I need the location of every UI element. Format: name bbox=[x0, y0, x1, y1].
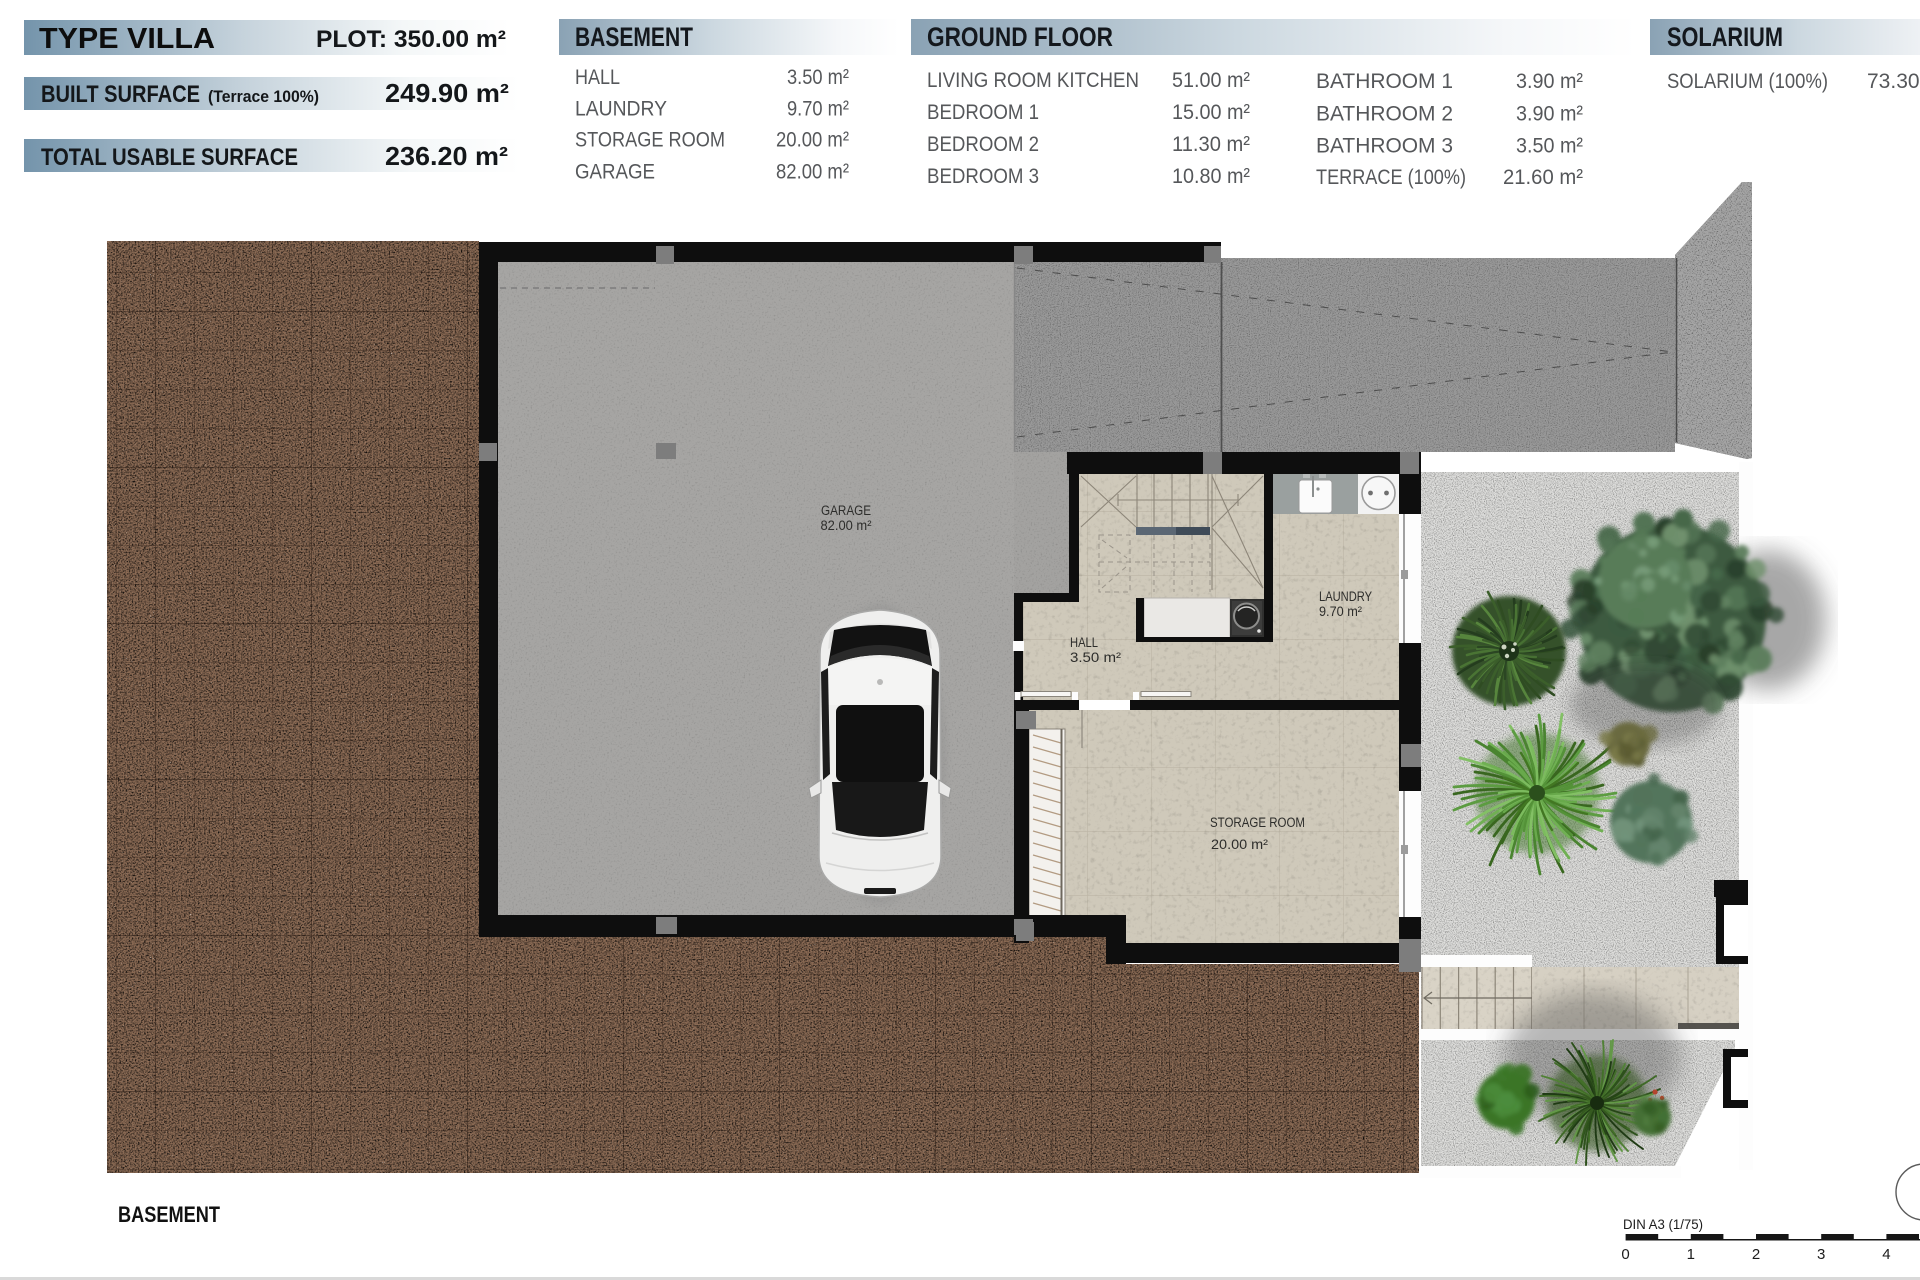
svg-text:1: 1 bbox=[1687, 1246, 1695, 1263]
svg-text:82.00 m²: 82.00 m² bbox=[821, 518, 872, 533]
svg-text:SOLARIUM (100%): SOLARIUM (100%) bbox=[1667, 70, 1828, 93]
svg-text:(Terrace 100%): (Terrace 100%) bbox=[208, 87, 319, 106]
svg-text:TOTAL USABLE SURFACE: TOTAL USABLE SURFACE bbox=[41, 144, 298, 171]
svg-text:21.60 m²: 21.60 m² bbox=[1503, 166, 1583, 189]
svg-text:BATHROOM 2: BATHROOM 2 bbox=[1316, 103, 1453, 126]
svg-text:DIN A3 (1/75): DIN A3 (1/75) bbox=[1623, 1217, 1703, 1232]
svg-text:TERRACE (100%): TERRACE (100%) bbox=[1316, 166, 1466, 189]
svg-text:BATHROOM 3: BATHROOM 3 bbox=[1316, 135, 1453, 158]
svg-text:249.90 m²: 249.90 m² bbox=[385, 78, 509, 108]
svg-text:STORAGE ROOM: STORAGE ROOM bbox=[575, 129, 725, 152]
svg-text:20.00 m²: 20.00 m² bbox=[1211, 837, 1269, 852]
svg-text:GARAGE: GARAGE bbox=[575, 161, 655, 184]
svg-text:LAUNDRY: LAUNDRY bbox=[575, 98, 667, 121]
svg-text:BASEMENT: BASEMENT bbox=[118, 1202, 220, 1227]
svg-text:15.00 m²: 15.00 m² bbox=[1172, 101, 1250, 124]
svg-text:236.20 m²: 236.20 m² bbox=[385, 141, 508, 171]
svg-text:BEDROOM 2: BEDROOM 2 bbox=[927, 133, 1039, 156]
svg-text:9.70 m²: 9.70 m² bbox=[1319, 604, 1362, 619]
svg-text:BEDROOM 1: BEDROOM 1 bbox=[927, 101, 1039, 124]
svg-text:LIVING ROOM KITCHEN: LIVING ROOM KITCHEN bbox=[927, 69, 1139, 92]
svg-text:HALL: HALL bbox=[1070, 635, 1098, 650]
svg-text:3.90 m²: 3.90 m² bbox=[1516, 103, 1583, 126]
svg-text:BUILT SURFACE: BUILT SURFACE bbox=[41, 81, 200, 108]
svg-text:3.50 m²: 3.50 m² bbox=[1516, 135, 1583, 158]
svg-text:BASEMENT: BASEMENT bbox=[575, 22, 693, 52]
svg-text:BEDROOM 3: BEDROOM 3 bbox=[927, 165, 1039, 188]
svg-text:HALL: HALL bbox=[575, 66, 620, 89]
svg-text:LAUNDRY: LAUNDRY bbox=[1319, 589, 1372, 604]
svg-text:9.70 m²: 9.70 m² bbox=[787, 98, 849, 121]
svg-text:3.90 m²: 3.90 m² bbox=[1516, 70, 1583, 93]
svg-text:2: 2 bbox=[1752, 1246, 1760, 1263]
svg-text:51.00 m²: 51.00 m² bbox=[1172, 69, 1250, 92]
svg-text:73.30 m²: 73.30 m² bbox=[1867, 70, 1920, 93]
svg-text:3: 3 bbox=[1817, 1246, 1825, 1263]
svg-text:STORAGE ROOM: STORAGE ROOM bbox=[1210, 815, 1305, 830]
svg-text:82.00 m²: 82.00 m² bbox=[776, 161, 849, 184]
svg-text:3.50 m²: 3.50 m² bbox=[1070, 650, 1122, 665]
svg-text:PLOT: 350.00 m²: PLOT: 350.00 m² bbox=[316, 26, 506, 53]
svg-text:3.50 m²: 3.50 m² bbox=[787, 66, 849, 89]
svg-text:BATHROOM 1: BATHROOM 1 bbox=[1316, 70, 1453, 93]
svg-text:10.80 m²: 10.80 m² bbox=[1172, 165, 1250, 188]
svg-text:4: 4 bbox=[1882, 1246, 1890, 1263]
svg-text:SOLARIUM: SOLARIUM bbox=[1667, 22, 1783, 52]
svg-text:GROUND FLOOR: GROUND FLOOR bbox=[927, 22, 1113, 52]
svg-text:20.00 m²: 20.00 m² bbox=[776, 129, 849, 152]
svg-text:GARAGE: GARAGE bbox=[821, 503, 871, 518]
svg-text:11.30 m²: 11.30 m² bbox=[1172, 133, 1250, 156]
svg-text:0: 0 bbox=[1621, 1246, 1629, 1263]
svg-text:TYPE VILLA: TYPE VILLA bbox=[39, 23, 215, 55]
